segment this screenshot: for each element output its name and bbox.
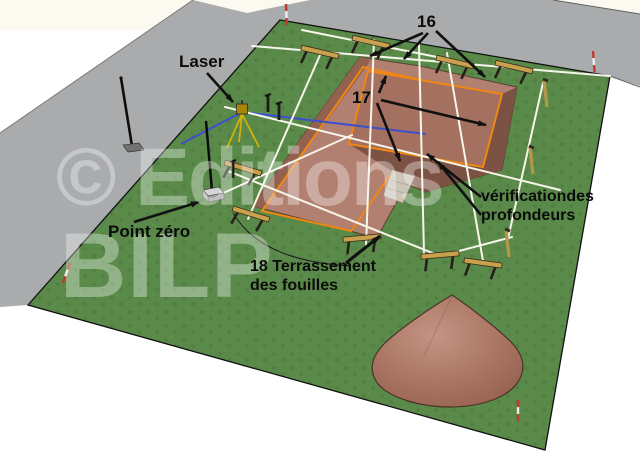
figure-terrassement-illustration: © Editions BILP Laser 16 17 vérification… <box>0 0 640 459</box>
site-3d-scene <box>0 0 640 459</box>
